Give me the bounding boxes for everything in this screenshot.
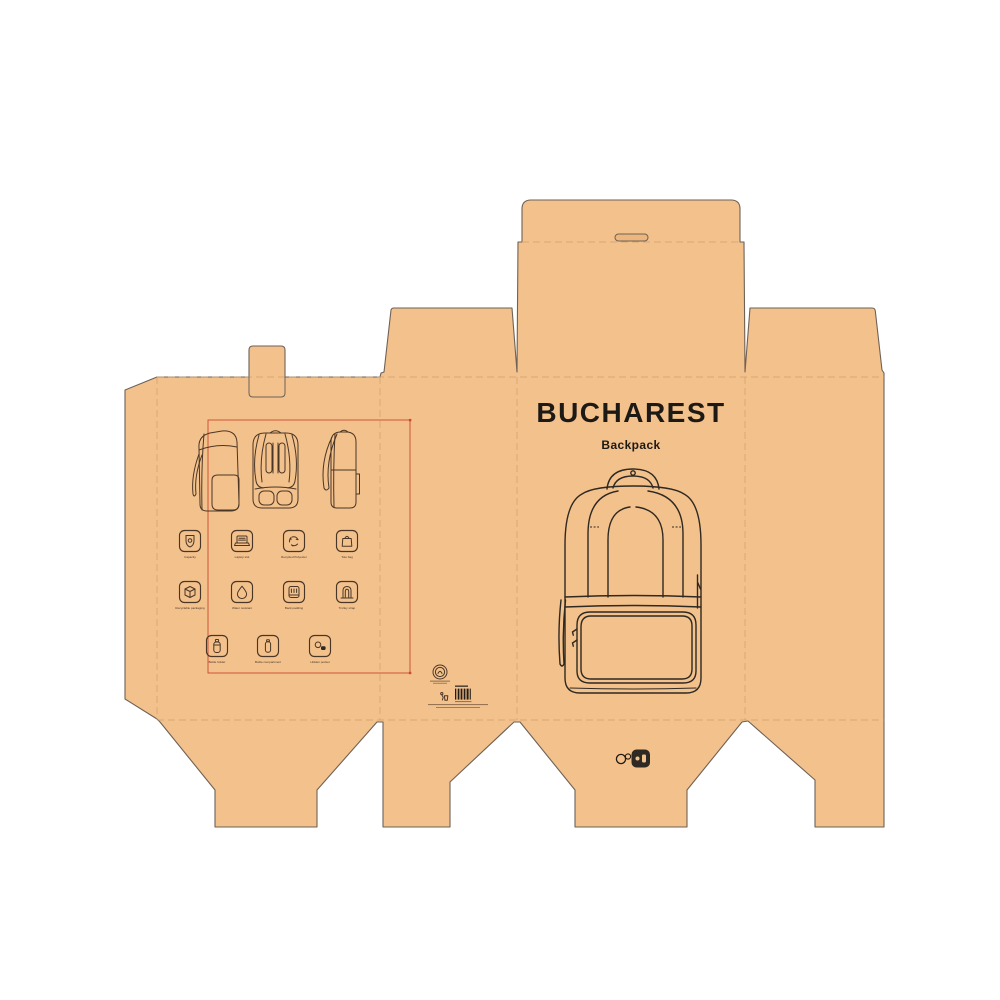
feature-label: Recycled Polyester bbox=[281, 555, 307, 559]
feature-label: Bottle holder bbox=[209, 660, 226, 664]
feature-label: Trolley strap bbox=[339, 606, 356, 610]
feature-label: Back padding bbox=[285, 606, 304, 610]
feature-label: Capacity bbox=[184, 555, 196, 559]
feature-label: Laptop slot bbox=[235, 555, 250, 559]
packaging-dieline-canvas: Capacity Laptop slot Recycled Polyester … bbox=[0, 0, 1000, 1000]
feature-label: Bottle compartment bbox=[255, 660, 281, 664]
packaging-dieline: Capacity Laptop slot Recycled Polyester … bbox=[0, 0, 1000, 1000]
feature-label: Water resistant bbox=[232, 606, 252, 610]
product-title: BUCHAREST bbox=[536, 397, 725, 428]
thumb-slot bbox=[615, 234, 648, 241]
dieline-outline bbox=[125, 200, 884, 827]
feature-label: Tote bag bbox=[341, 555, 353, 559]
feature-label: Recyclable packaging bbox=[175, 606, 205, 610]
product-subtitle: Backpack bbox=[601, 438, 660, 452]
feature-label: Hidden pocket bbox=[310, 660, 329, 664]
